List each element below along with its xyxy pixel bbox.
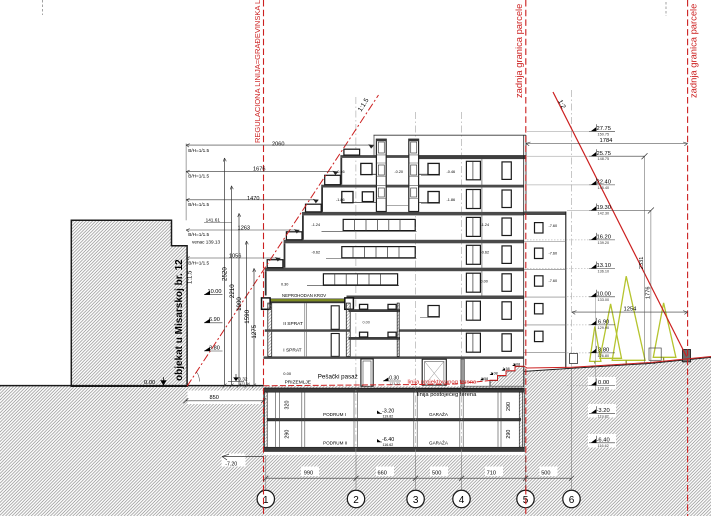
svg-text:3.80: 3.80	[598, 348, 609, 354]
svg-text:500: 500	[432, 470, 441, 476]
svg-text:2210: 2210	[229, 284, 236, 298]
svg-text:116.62: 116.62	[383, 443, 394, 447]
svg-text:linija postojećeg terena: linija postojećeg terena	[417, 392, 477, 398]
svg-text:145.40: 145.40	[598, 186, 610, 190]
svg-text:-0.62: -0.62	[312, 251, 321, 255]
svg-text:0.32: 0.32	[239, 377, 248, 382]
svg-text:-1.24: -1.24	[312, 223, 321, 227]
svg-text:10.00: 10.00	[208, 289, 222, 295]
svg-text:1:1.5: 1:1.5	[188, 270, 194, 284]
svg-text:6.90: 6.90	[209, 317, 220, 323]
svg-text:290: 290	[506, 430, 512, 439]
svg-text:PRIZEMLJE: PRIZEMLJE	[285, 379, 311, 385]
svg-text:1590: 1590	[244, 309, 251, 323]
svg-text:objekat u Misarskoj br. 12: objekat u Misarskoj br. 12	[174, 259, 185, 381]
svg-text:136.10: 136.10	[598, 270, 610, 274]
svg-text:320: 320	[285, 401, 291, 410]
svg-text:1254: 1254	[624, 306, 638, 312]
svg-text:GARAŽA: GARAŽA	[429, 439, 449, 446]
svg-text:B/H=1/1.5: B/H=1/1.5	[188, 260, 209, 265]
svg-text:0.30: 0.30	[281, 282, 288, 286]
svg-text:linija projektovanog terena: linija projektovanog terena	[408, 380, 477, 386]
svg-text:0.00: 0.00	[481, 280, 488, 284]
svg-text:123.32: 123.32	[390, 382, 400, 386]
svg-text:-7.60: -7.60	[549, 224, 558, 228]
svg-text:venac 139.13: venac 139.13	[192, 239, 221, 244]
svg-text:10.00: 10.00	[597, 292, 612, 298]
svg-text:1784: 1784	[600, 138, 614, 144]
svg-text:660: 660	[378, 470, 387, 476]
svg-text:2: 2	[353, 495, 359, 506]
svg-text:1056: 1056	[229, 253, 241, 259]
svg-text:119.82: 119.82	[598, 414, 609, 418]
svg-text:REGULACIONA LINIJA=GRAĐEVINSKA: REGULACIONA LINIJA=GRAĐEVINSKA LINIJA	[253, 0, 262, 143]
svg-text:-3.20: -3.20	[597, 408, 610, 414]
svg-text:141.61: 141.61	[206, 218, 221, 223]
svg-text:0.00: 0.00	[283, 371, 292, 376]
svg-text:1900: 1900	[236, 297, 243, 311]
svg-text:zadnja granica parcele: zadnja granica parcele	[513, 4, 524, 98]
svg-text:148.75: 148.75	[598, 157, 610, 161]
svg-text:116.62: 116.62	[598, 444, 609, 448]
svg-text:1275: 1275	[251, 324, 258, 338]
svg-text:129.90: 129.90	[598, 326, 610, 330]
svg-text:133.00: 133.00	[598, 298, 610, 302]
svg-text:123.02: 123.02	[598, 386, 610, 390]
svg-text:-0.46: -0.46	[447, 170, 456, 174]
svg-text:19.30: 19.30	[597, 205, 612, 211]
svg-text:NEPROHODAN KROV: NEPROHODAN KROV	[282, 293, 326, 298]
svg-text:II SPRAT: II SPRAT	[283, 321, 303, 327]
svg-text:1676: 1676	[253, 167, 265, 173]
svg-text:B/H=1/1.5: B/H=1/1.5	[188, 173, 209, 178]
svg-text:3.80: 3.80	[209, 345, 220, 351]
svg-text:139.20: 139.20	[598, 241, 610, 245]
svg-text:-7.60: -7.60	[549, 279, 558, 283]
svg-text:-6.40: -6.40	[382, 437, 394, 443]
svg-text:2331: 2331	[639, 257, 645, 269]
svg-text:290: 290	[285, 430, 291, 439]
svg-text:B/H=1/1.5: B/H=1/1.5	[188, 202, 209, 207]
svg-text:0.00: 0.00	[144, 380, 155, 386]
svg-text:-7.20: -7.20	[225, 462, 237, 468]
svg-text:0.00: 0.00	[363, 321, 370, 325]
svg-text:3: 3	[413, 495, 419, 506]
svg-text:290: 290	[506, 402, 512, 411]
svg-text:6.90: 6.90	[598, 320, 609, 326]
svg-text:I SPRAT: I SPRAT	[283, 348, 301, 354]
svg-text:1470: 1470	[247, 196, 259, 202]
svg-text:-1.24: -1.24	[481, 223, 490, 227]
svg-text:B/H=1/1.5: B/H=1/1.5	[188, 232, 209, 237]
svg-text:PODRUM II: PODRUM II	[323, 441, 347, 446]
svg-text:119.82: 119.82	[383, 415, 394, 419]
svg-text:150.75: 150.75	[598, 132, 610, 136]
svg-text:GARAŽA: GARAŽA	[429, 410, 449, 417]
svg-text:0.30: 0.30	[389, 376, 399, 382]
svg-text:-3.20: -3.20	[382, 409, 394, 415]
svg-text:-0.62: -0.62	[481, 251, 490, 255]
svg-text:1776: 1776	[645, 287, 651, 299]
svg-text:-7.60: -7.60	[549, 252, 558, 256]
svg-text:25.75: 25.75	[597, 151, 612, 157]
svg-text:1263: 1263	[238, 226, 250, 232]
svg-text:-0.20: -0.20	[394, 170, 403, 174]
svg-text:16.20: 16.20	[597, 235, 612, 241]
svg-text:0.00: 0.00	[598, 380, 609, 386]
svg-text:13.10: 13.10	[597, 263, 612, 269]
svg-text:Pešački pasaž: Pešački pasaž	[318, 374, 358, 381]
svg-text:500: 500	[541, 470, 550, 476]
svg-text:126.80: 126.80	[598, 354, 610, 358]
svg-text:710: 710	[487, 470, 496, 476]
svg-text:-6.40: -6.40	[597, 438, 610, 444]
svg-text:PODRUM I: PODRUM I	[323, 412, 346, 417]
svg-text:-1.86: -1.86	[336, 198, 345, 202]
svg-text:142.30: 142.30	[598, 212, 610, 216]
svg-text:B/H=1/1.5: B/H=1/1.5	[188, 148, 209, 153]
svg-text:zadnja granica parcele: zadnja granica parcele	[688, 4, 699, 98]
svg-text:2060: 2060	[272, 141, 284, 147]
svg-text:-1.86: -1.86	[447, 198, 456, 202]
svg-text:2520: 2520	[222, 267, 229, 281]
svg-text:6: 6	[569, 495, 575, 506]
svg-text:22.40: 22.40	[597, 180, 612, 186]
svg-text:850: 850	[210, 395, 219, 401]
svg-text:4: 4	[459, 495, 465, 506]
svg-text:990: 990	[304, 470, 313, 476]
svg-text:27.75: 27.75	[597, 126, 612, 132]
